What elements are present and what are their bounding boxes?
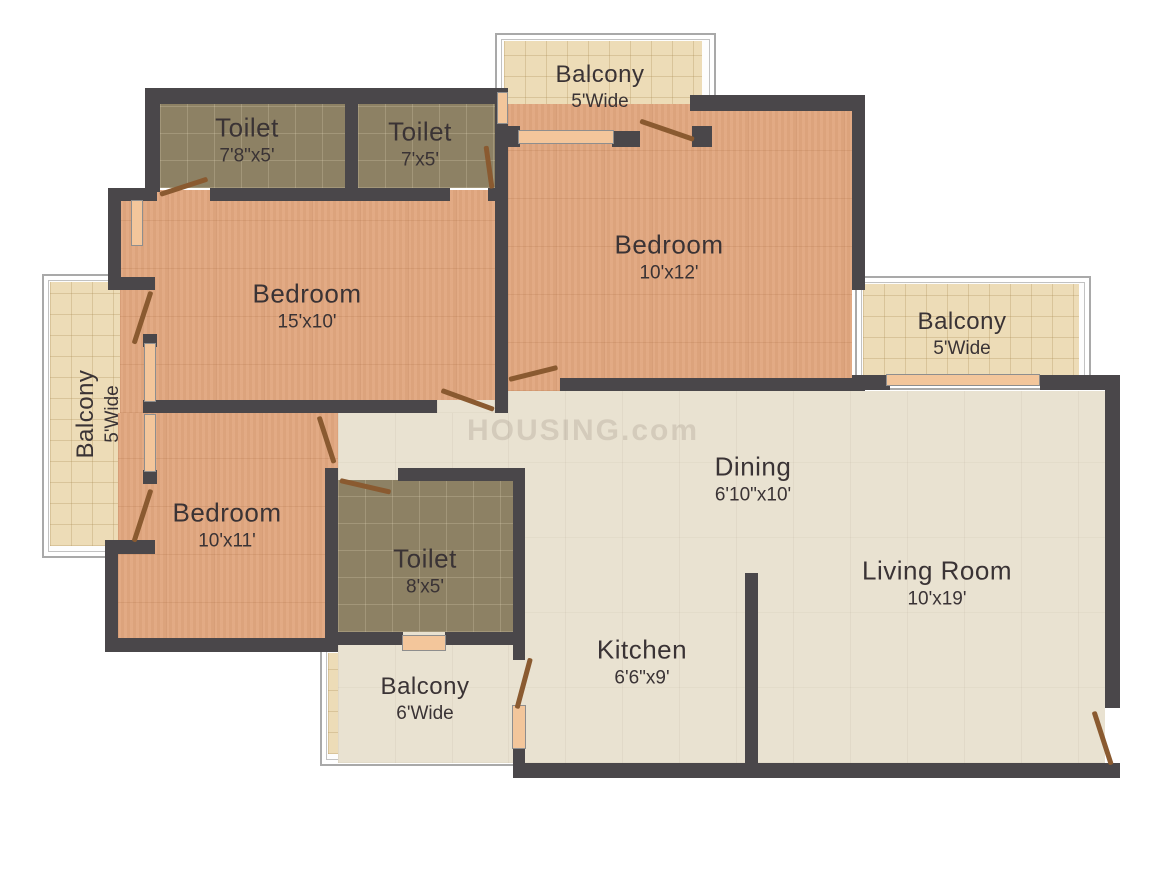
wall-segment: [513, 748, 525, 778]
wall-segment: [745, 573, 758, 765]
room-dims: 5'Wide: [102, 370, 124, 459]
room-name: Balcony: [918, 308, 1007, 336]
room-dims: 7'x5': [388, 150, 452, 172]
wall-segment: [325, 468, 338, 645]
window-sill: [497, 92, 508, 124]
room-label-balcony-right: Balcony 5'Wide: [918, 308, 1007, 360]
wall-segment: [325, 632, 403, 645]
wall-segment: [518, 763, 1120, 778]
room-label-balcony-bottom: Balcony 6'Wide: [381, 673, 470, 725]
wall-segment: [497, 126, 520, 147]
room-label-toilet-top-mid: Toilet 7'x5': [388, 117, 452, 172]
room-dims: 5'Wide: [556, 91, 645, 113]
wall-segment: [143, 400, 437, 413]
window-sill: [402, 635, 446, 651]
room-name: Balcony: [381, 673, 470, 701]
room-name: Toilet: [393, 544, 457, 575]
room-label-balcony-left: Balcony 5'Wide: [72, 370, 124, 459]
room-label-toilet-center: Toilet 8'x5': [393, 544, 457, 599]
room-name: Balcony: [556, 61, 645, 89]
room-name: Living Room: [862, 556, 1012, 587]
window-sill: [144, 343, 156, 402]
wall-segment: [145, 88, 507, 104]
wall-segment: [143, 470, 157, 484]
room-label-dining: Dining 6'10"x10': [715, 452, 792, 507]
room-dims: 8'x5': [393, 577, 457, 599]
room-label-toilet-top-left: Toilet 7'8"x5': [215, 113, 279, 168]
room-dims: 6'10"x10': [715, 485, 792, 507]
room-name: Balcony: [72, 370, 100, 459]
room-dims: 6'Wide: [381, 703, 470, 725]
wall-segment: [690, 95, 865, 111]
wall-segment: [692, 126, 712, 147]
window-sill: [886, 374, 1040, 386]
wall-segment: [210, 188, 450, 201]
floor-plan: HOUSING.com Toilet 7'8"x5' Toilet 7'x5' …: [0, 0, 1160, 870]
room-label-bedroom-bottom-left: Bedroom 10'x11': [173, 498, 282, 553]
window-sill: [144, 414, 156, 472]
wall-segment: [445, 632, 525, 645]
room-dims: 6'6"x9': [597, 668, 687, 690]
room-dims: 10'x11': [173, 531, 282, 553]
room-name: Kitchen: [597, 635, 687, 666]
room-label-bedroom-top-right: Bedroom 10'x12': [615, 230, 724, 285]
wall-segment: [398, 468, 525, 481]
room-label-living-room: Living Room 10'x19': [862, 556, 1012, 611]
room-name: Dining: [715, 452, 792, 483]
room-dims: 5'Wide: [918, 338, 1007, 360]
wall-segment: [345, 104, 358, 201]
room-name: Toilet: [388, 117, 452, 148]
window-sill: [131, 200, 143, 246]
room-dims: 10'x19': [862, 589, 1012, 611]
wall-segment: [612, 131, 640, 147]
room-label-bedroom-left: Bedroom 15'x10': [253, 279, 362, 334]
wall-segment: [145, 88, 160, 192]
wall-segment: [1105, 375, 1120, 708]
room-name: Bedroom: [173, 498, 282, 529]
watermark: HOUSING.com: [467, 414, 699, 448]
window-sill: [512, 705, 526, 749]
wall-segment: [108, 277, 155, 290]
wall-segment: [108, 188, 121, 290]
room-dims: 15'x10': [253, 312, 362, 334]
room-dims: 7'8"x5': [215, 146, 279, 168]
wall-segment: [852, 375, 890, 390]
room-label-kitchen: Kitchen 6'6"x9': [597, 635, 687, 690]
wall-segment: [105, 540, 118, 652]
room-dims: 10'x12': [615, 263, 724, 285]
room-name: Toilet: [215, 113, 279, 144]
wall-segment: [105, 638, 338, 652]
window-sill: [518, 130, 614, 144]
wall-segment: [560, 378, 865, 391]
wall-segment: [852, 95, 865, 290]
room-name: Bedroom: [615, 230, 724, 261]
room-label-balcony-top: Balcony 5'Wide: [556, 61, 645, 113]
room-name: Bedroom: [253, 279, 362, 310]
